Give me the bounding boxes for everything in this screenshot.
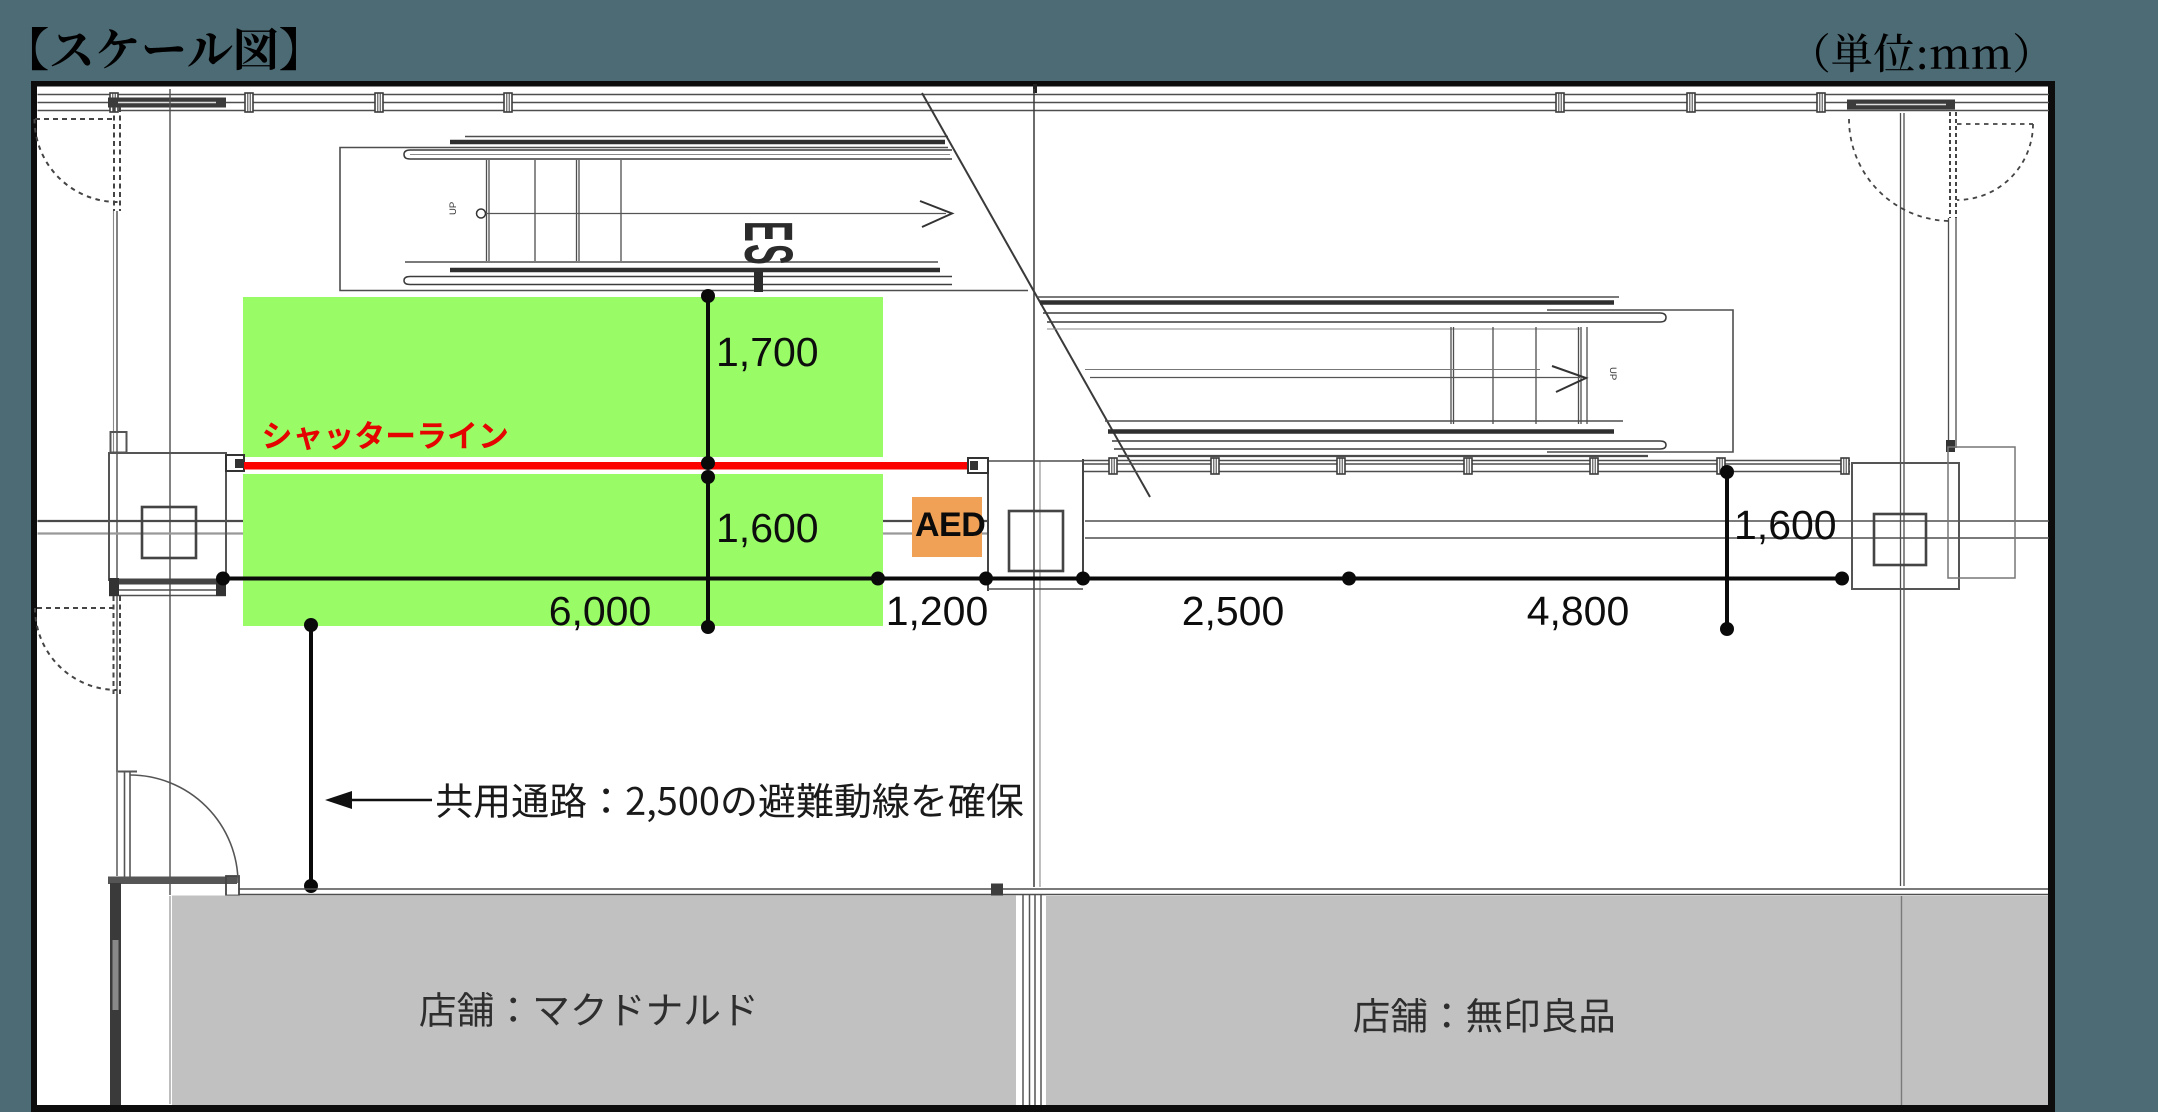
svg-text:ES: ES <box>730 221 806 267</box>
svg-text:1,700: 1,700 <box>716 329 819 375</box>
svg-text:UP: UP <box>1607 367 1618 380</box>
svg-text:2,500: 2,500 <box>1182 588 1285 634</box>
svg-text:1,600: 1,600 <box>716 505 819 551</box>
svg-text:1,200: 1,200 <box>886 588 989 634</box>
svg-text:1,600: 1,600 <box>1734 502 1837 548</box>
svg-text:4,800: 4,800 <box>1527 588 1630 634</box>
svg-text:AED: AED <box>915 506 985 544</box>
svg-text:UP: UP <box>448 202 459 215</box>
svg-text:6,000: 6,000 <box>549 588 652 634</box>
